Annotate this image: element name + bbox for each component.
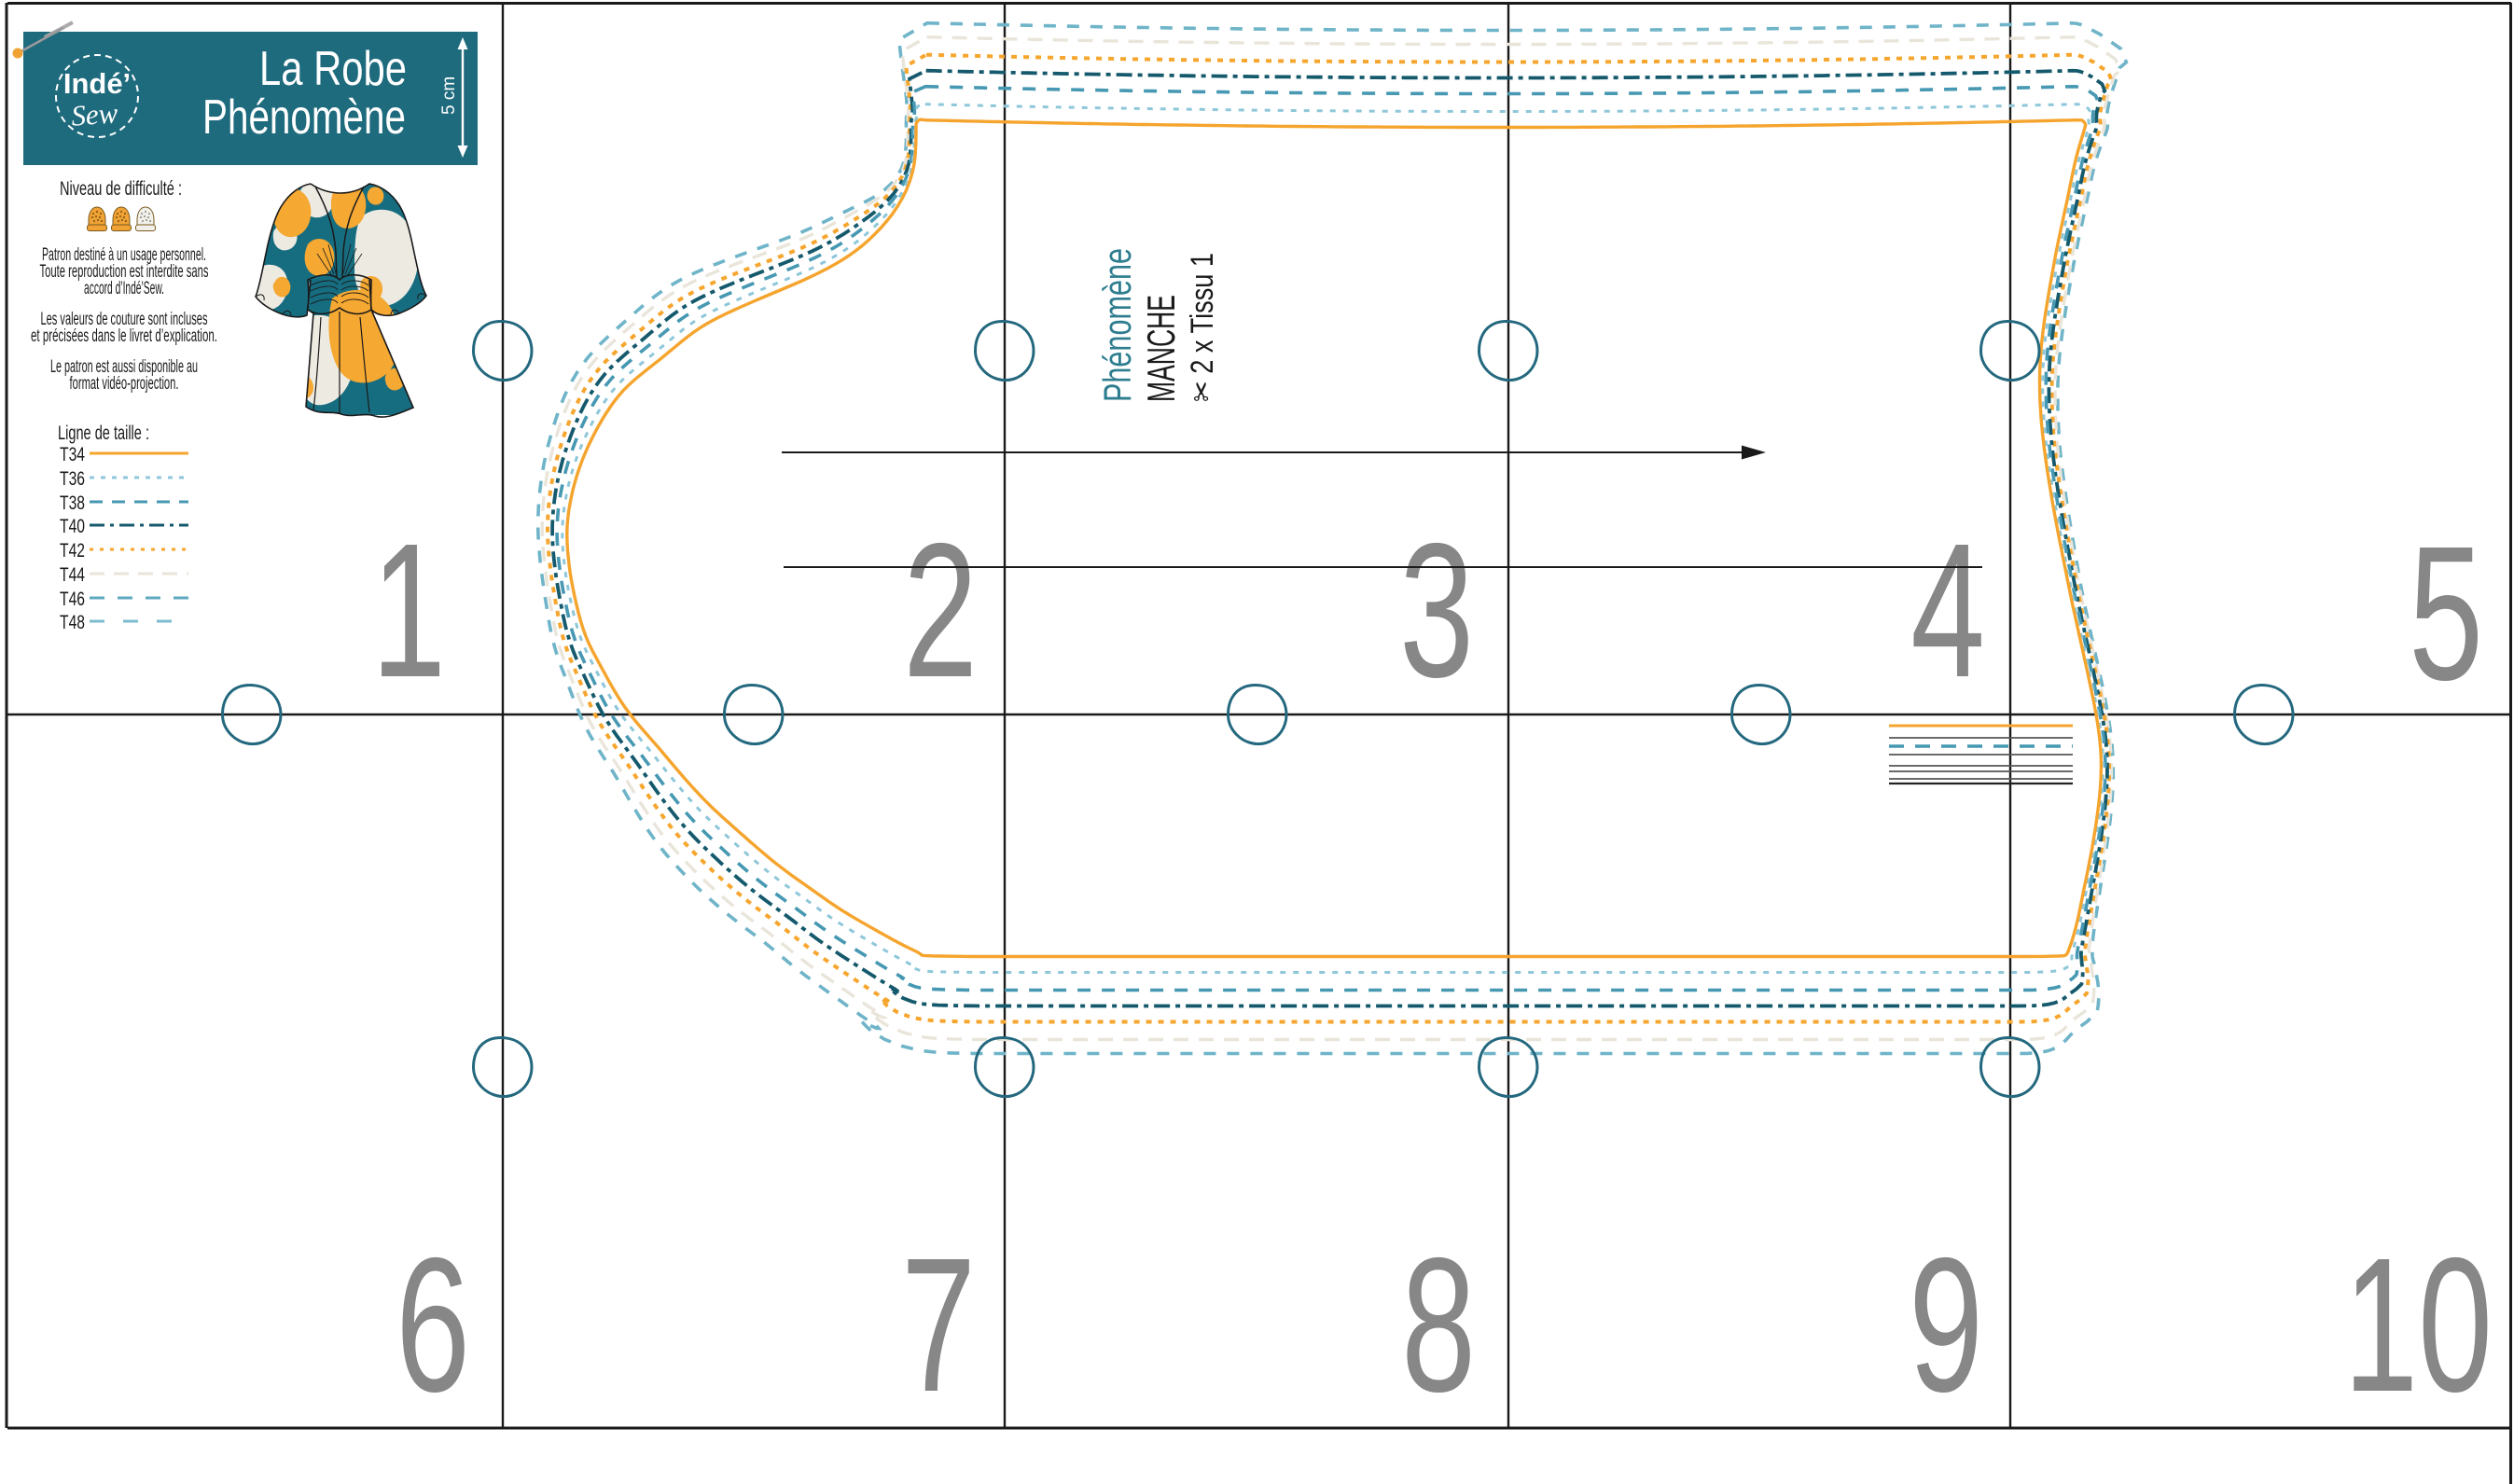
svg-text:T42: T42 <box>60 540 85 562</box>
svg-text:2: 2 <box>903 505 978 717</box>
svg-text:3: 3 <box>1399 505 1474 717</box>
svg-text:T46: T46 <box>60 589 85 610</box>
svg-text:7: 7 <box>901 1219 976 1432</box>
svg-text:T36: T36 <box>60 468 85 490</box>
svg-text:Ligne de taille :: Ligne de taille : <box>58 423 149 444</box>
svg-text:accord d’Indé’Sew.: accord d’Indé’Sew. <box>84 279 164 298</box>
svg-text:T44: T44 <box>60 564 85 586</box>
svg-text:T34: T34 <box>60 444 85 465</box>
svg-text:T48: T48 <box>60 612 85 633</box>
svg-text:MANCHE: MANCHE <box>1139 295 1183 402</box>
svg-text:et précisées dans le livret d’: et précisées dans le livret d’explicatio… <box>31 326 217 346</box>
svg-text:6: 6 <box>396 1219 470 1432</box>
svg-text:Phénomène: Phénomène <box>1095 248 1139 402</box>
svg-text:Niveau de difficulté :: Niveau de difficulté : <box>60 178 182 200</box>
svg-text:Sew: Sew <box>70 96 119 132</box>
svg-text:4: 4 <box>1910 505 1985 717</box>
svg-text:Indé’: Indé’ <box>63 67 131 100</box>
svg-text:Phénomène: Phénomène <box>202 90 406 145</box>
svg-text:✂ 2 x Tissu 1: ✂ 2 x Tissu 1 <box>1185 253 1220 402</box>
svg-text:5: 5 <box>2409 507 2483 720</box>
svg-text:9: 9 <box>1909 1219 1983 1432</box>
svg-text:T40: T40 <box>60 516 85 537</box>
svg-text:1: 1 <box>371 505 446 717</box>
svg-text:La Robe: La Robe <box>259 42 407 96</box>
svg-text:5 cm: 5 cm <box>439 76 459 115</box>
svg-text:format vidéo-projection.: format vidéo-projection. <box>70 374 179 394</box>
svg-text:10: 10 <box>2343 1219 2493 1432</box>
svg-text:8: 8 <box>1401 1219 1476 1432</box>
svg-text:T38: T38 <box>60 492 85 514</box>
